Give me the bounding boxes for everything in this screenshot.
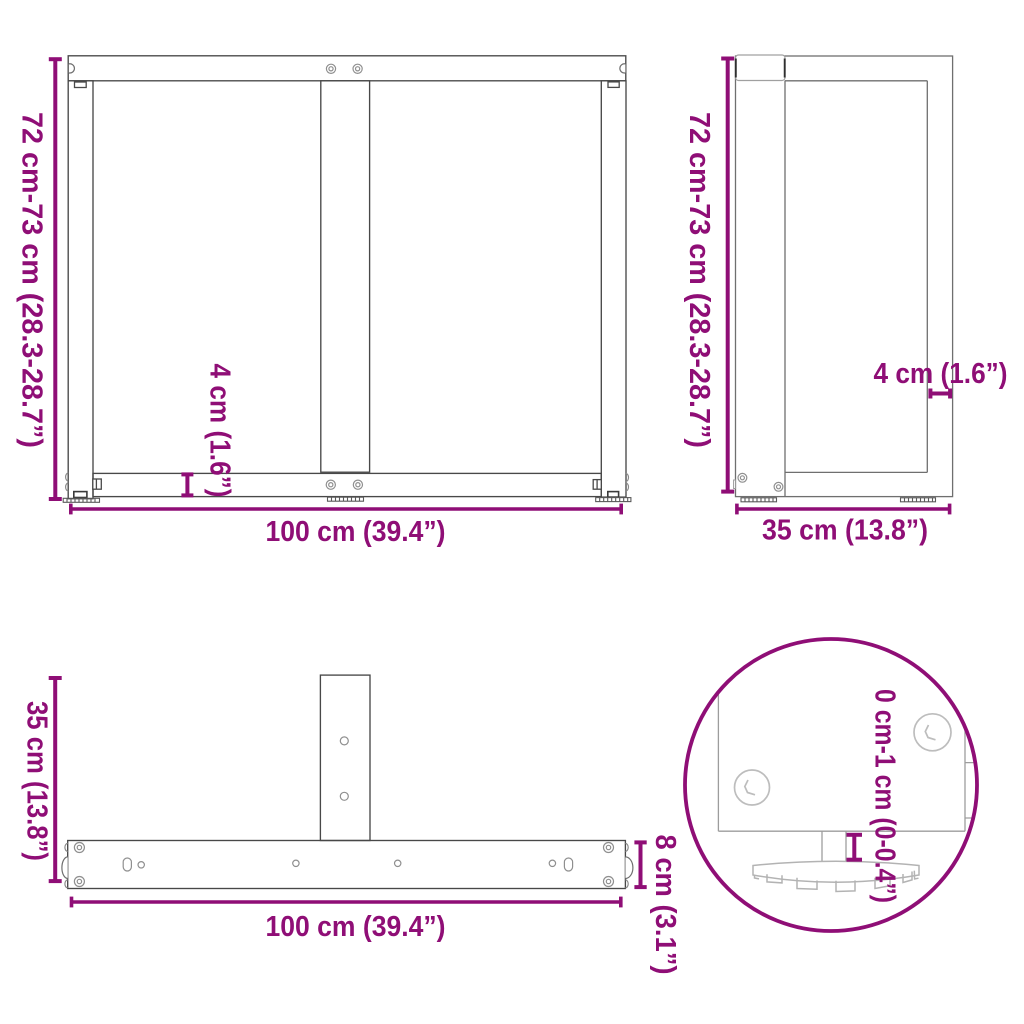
svg-text:0 cm-1 cm (0-0.4”): 0 cm-1 cm (0-0.4”)	[869, 689, 901, 903]
svg-text:4 cm (1.6”): 4 cm (1.6”)	[874, 358, 1008, 390]
svg-text:4 cm (1.6”): 4 cm (1.6”)	[204, 364, 236, 498]
svg-text:35 cm (13.8”): 35 cm (13.8”)	[21, 701, 53, 861]
svg-text:100 cm (39.4”): 100 cm (39.4”)	[266, 516, 446, 548]
svg-text:8 cm (3.1”): 8 cm (3.1”)	[649, 835, 681, 975]
svg-text:35 cm (13.8”): 35 cm (13.8”)	[762, 515, 928, 547]
svg-text:72 cm-73 cm (28.3-28.7”): 72 cm-73 cm (28.3-28.7”)	[683, 112, 715, 448]
svg-text:100 cm (39.4”): 100 cm (39.4”)	[266, 911, 446, 943]
svg-text:72 cm-73 cm (28.3-28.7”): 72 cm-73 cm (28.3-28.7”)	[16, 112, 48, 448]
